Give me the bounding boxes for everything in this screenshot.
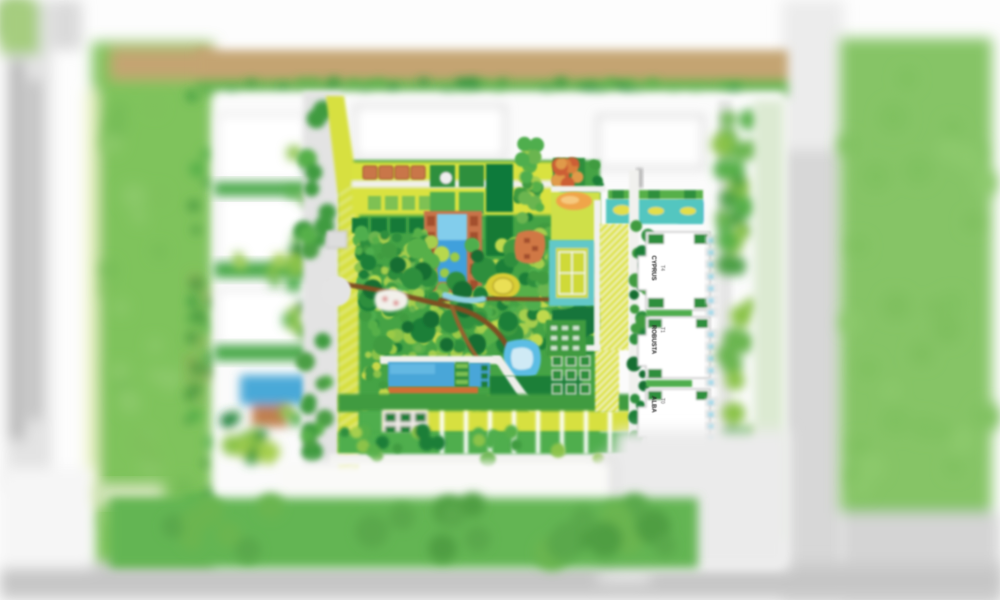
- svg-text:T0: T0: [659, 398, 665, 404]
- svg-text:T4: T4: [659, 265, 665, 271]
- svg-text:T1: T1: [659, 327, 665, 333]
- svg-text:ROBUSTA: ROBUSTA: [650, 325, 656, 355]
- svg-text:ALBA: ALBA: [650, 396, 656, 413]
- svg-text:CYPRUS: CYPRUS: [650, 255, 656, 280]
